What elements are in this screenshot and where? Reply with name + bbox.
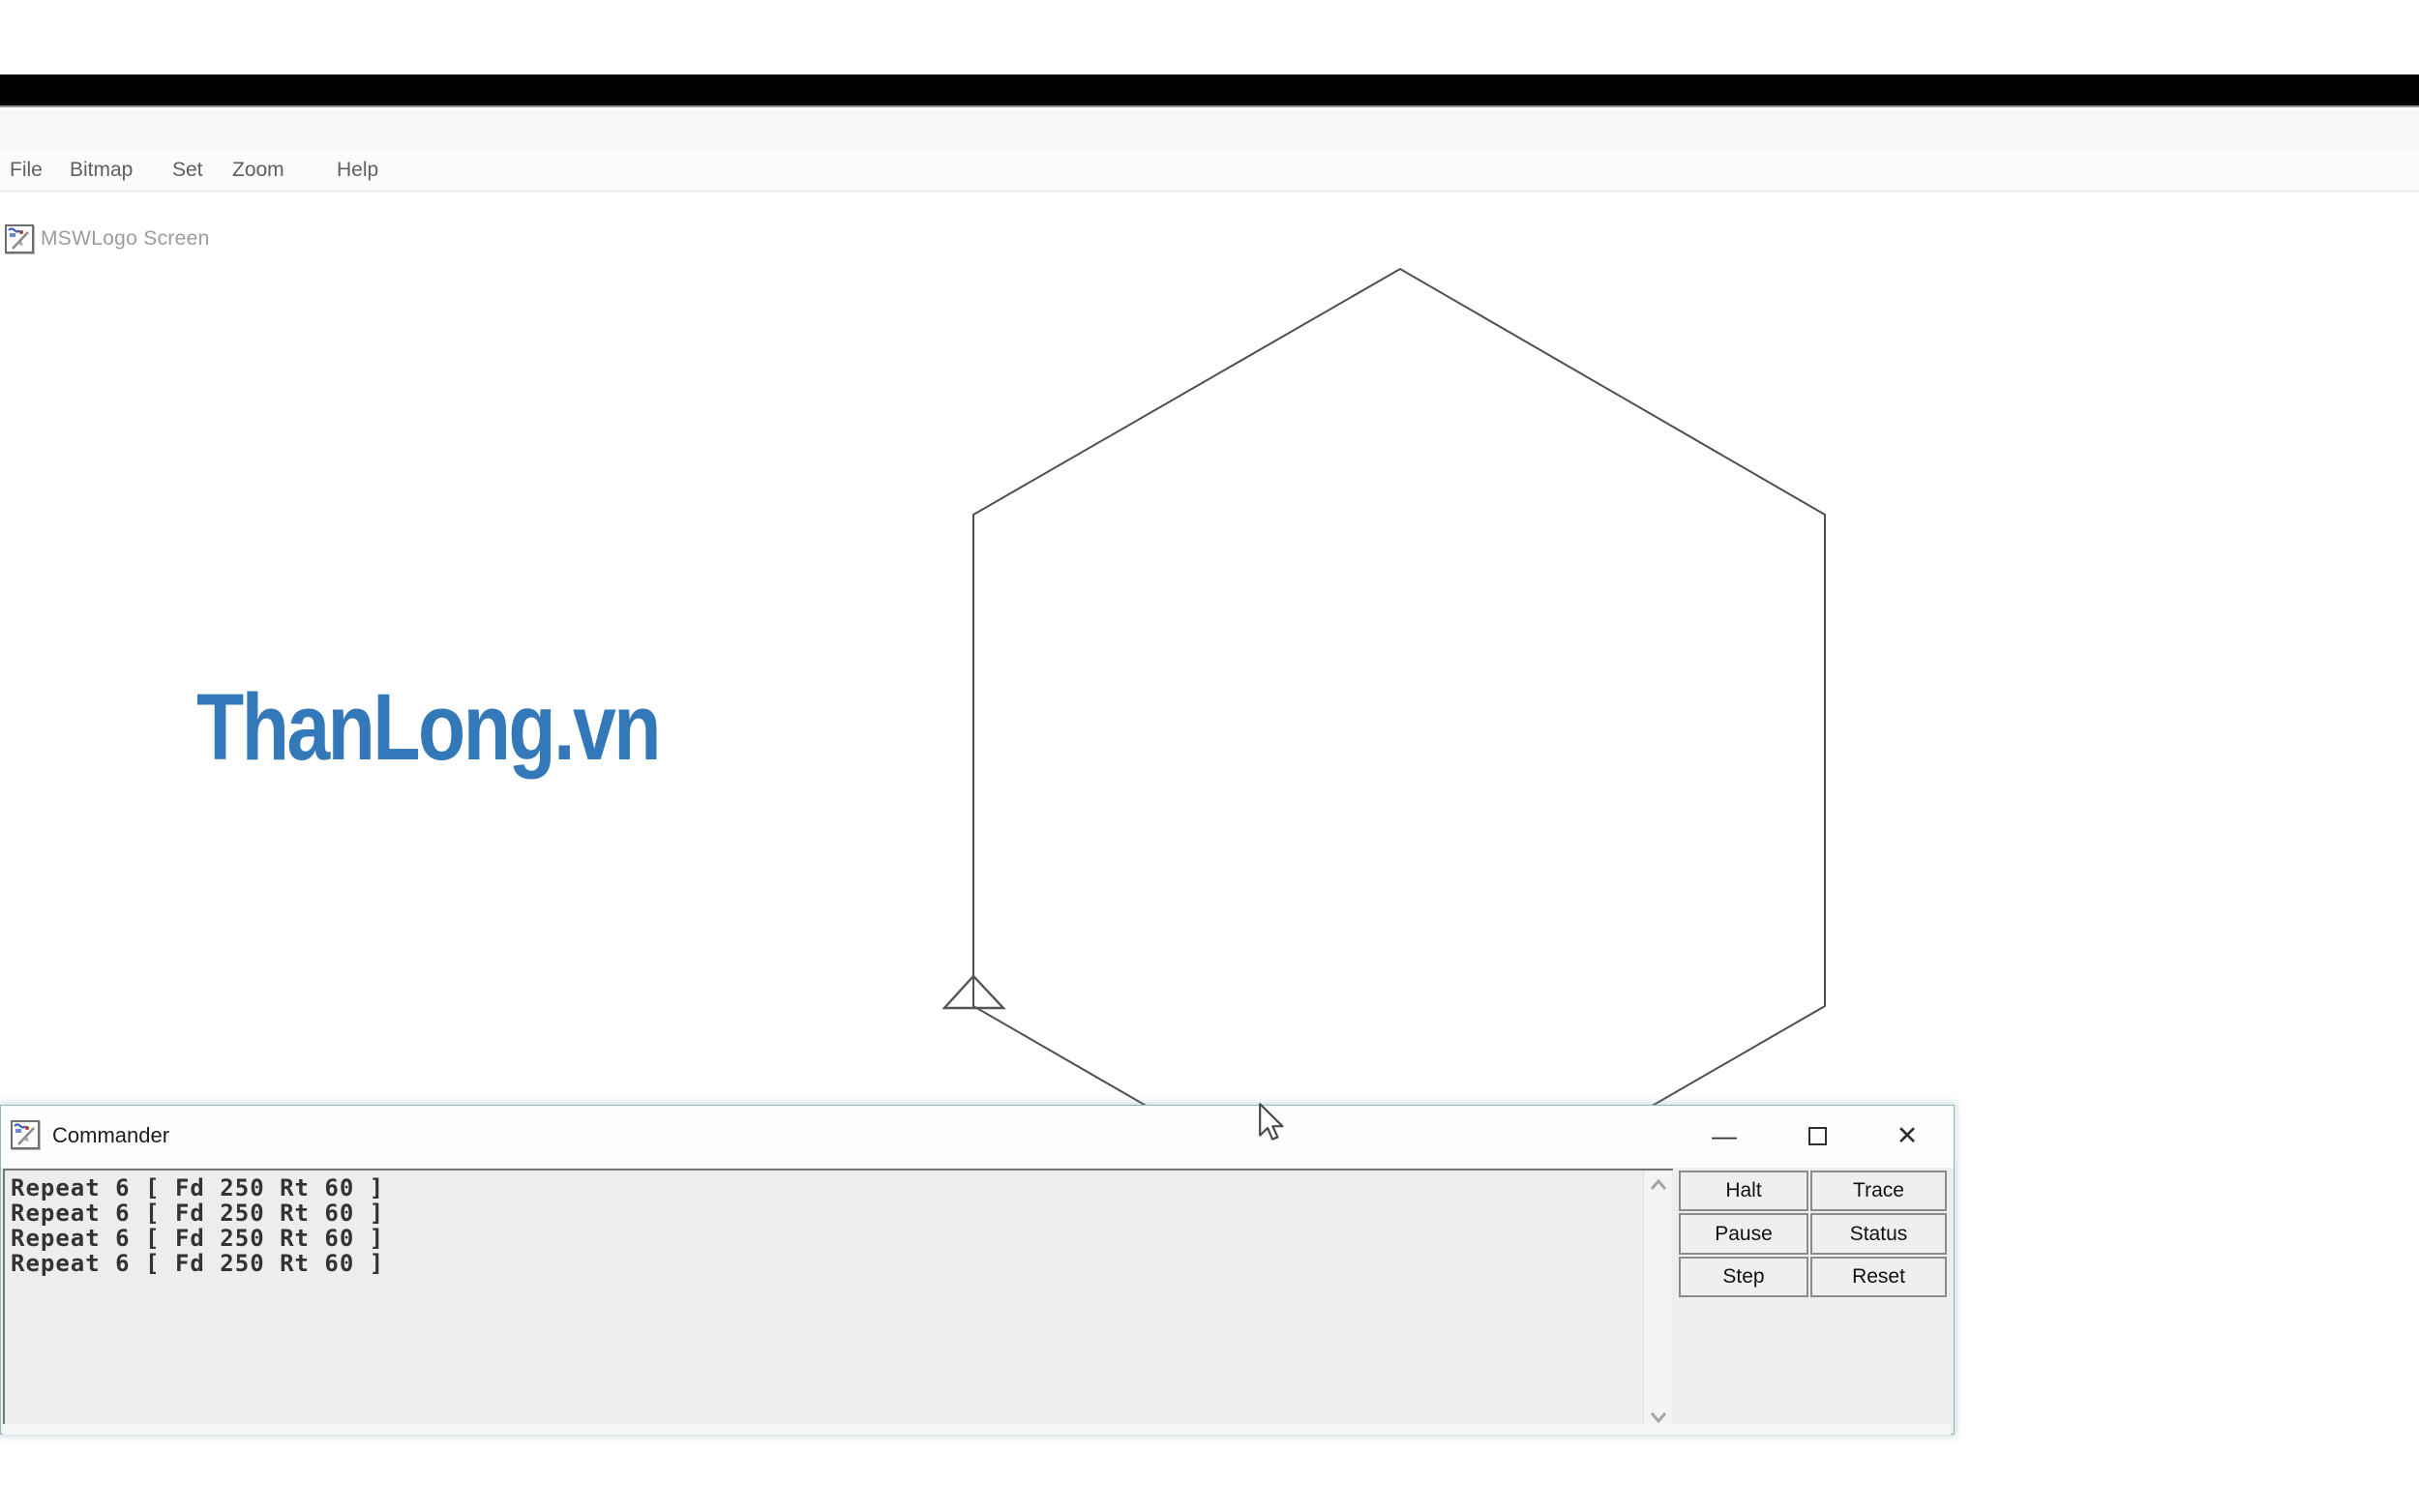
command-history-list[interactable]: Repeat 6 [ Fd 250 Rt 60 ] Repeat 6 [ Fd … <box>3 1169 1673 1424</box>
mouse-cursor <box>1258 1103 1287 1145</box>
watermark-thanlong: ThanLong.vn <box>196 673 659 782</box>
pause-button[interactable]: Pause <box>1679 1213 1808 1255</box>
commander-buttons: Halt Trace Pause Status Step Reset <box>1679 1171 1949 1297</box>
commander-window: Commander — ✕ Repeat 6 [ Fd 250 Rt 60 ] … <box>0 1105 1955 1435</box>
step-button[interactable]: Step <box>1679 1257 1808 1297</box>
scroll-up-icon[interactable] <box>1648 1176 1669 1194</box>
commander-title: Commander <box>52 1106 169 1168</box>
status-button[interactable]: Status <box>1810 1213 1947 1255</box>
history-scrollbar[interactable] <box>1643 1171 1672 1432</box>
history-line: Repeat 6 [ Fd 250 Rt 60 ] <box>11 1226 1671 1251</box>
minimize-button[interactable]: — <box>1702 1115 1747 1156</box>
history-line: Repeat 6 [ Fd 250 Rt 60 ] <box>11 1251 1671 1276</box>
maximize-button[interactable] <box>1795 1115 1839 1156</box>
trace-button[interactable]: Trace <box>1810 1171 1947 1211</box>
maximize-icon <box>1808 1127 1827 1145</box>
commander-icon-art <box>13 1122 38 1147</box>
command-input[interactable] <box>3 1424 1951 1435</box>
history-line: Repeat 6 [ Fd 250 Rt 60 ] <box>11 1201 1671 1226</box>
close-button[interactable]: ✕ <box>1885 1115 1929 1156</box>
history-line: Repeat 6 [ Fd 250 Rt 60 ] <box>11 1175 1671 1201</box>
commander-window-icon <box>11 1120 40 1149</box>
reset-button[interactable]: Reset <box>1810 1257 1947 1297</box>
halt-button[interactable]: Halt <box>1679 1171 1808 1211</box>
